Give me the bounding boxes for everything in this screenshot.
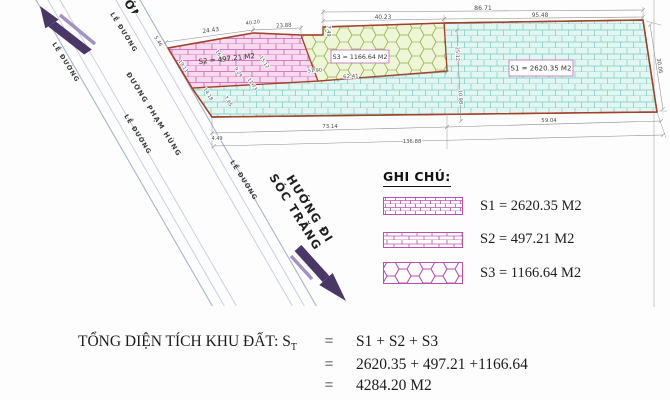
equals-sign: = [316, 377, 342, 395]
equals-sign: = [316, 356, 342, 374]
dimension-label: 59.04 [541, 118, 557, 124]
dimension-line [214, 135, 663, 146]
dimension-label: 23.88 [276, 22, 292, 29]
dimension-label: 24.43 [202, 27, 220, 35]
legend-title: GHI CHÚ: [383, 169, 451, 187]
summary-label: TỔNG DIỆN TÍCH KHU ĐẤT: ST [78, 333, 316, 353]
site-plan-page: 86.7140.2395.4824.4340.2023.885.467.4930… [0, 0, 670, 400]
direction-label-soc-trang: HƯỚNG ĐI SÓC TRĂNG [266, 163, 337, 253]
dimension-label: 25.12 [454, 47, 461, 62]
legend-item-s1: S1 = 2620.35 M2 [383, 197, 582, 215]
dimension-label: 73.14 [322, 124, 338, 130]
road-name-label: ĐƯỜNG PHẠM HÙNG [124, 70, 184, 158]
s3-pattern-swatch [383, 262, 463, 284]
legend-item-s2: S2 = 497.21 M2 [383, 231, 582, 248]
summary-line2: 2620.35 + 497.21 +1166.64 [342, 356, 528, 374]
dimension-label: 62.41 [343, 73, 359, 80]
dimension-label: 4.49 [211, 136, 222, 142]
road-edge-label: LỀ ĐƯỜNG [108, 10, 141, 54]
legend-s2-value: S2 = 497.21 M2 [480, 231, 574, 248]
dimension-label: 40.23 [375, 15, 392, 21]
plot-s3-label-box: S3 = 1166.64 M2 [331, 50, 389, 63]
equals-sign: = [316, 333, 342, 353]
plot-s1-label-box: S1 = 2620.35 M2 [509, 60, 573, 76]
dimension-label: 40.20 [245, 19, 260, 27]
road-arrow-southeast [291, 245, 346, 301]
dimension-label: 7.49 [325, 25, 331, 36]
dimension-label: 51.90 [308, 68, 323, 75]
legend: GHI CHÚ: S1 = 2620.35 M2 S2 = 497.21 M2 … [383, 166, 582, 284]
total-area-summary: TỔNG DIỆN TÍCH KHU ĐẤT: ST = S1 + S2 + S… [78, 333, 528, 395]
land-plots [168, 20, 657, 117]
legend-s3-value: S3 = 1166.64 M2 [480, 265, 581, 282]
dimension-label: 10.98 [457, 90, 464, 105]
dimension-label: 136.88 [403, 139, 422, 145]
road-edge-label: LỀ ĐƯỜNG [122, 112, 155, 156]
plot-s1-label: S1 = 2620.35 M2 [511, 65, 572, 73]
summary-line1: S1 + S2 + S3 [342, 333, 528, 353]
legend-s1-value: S1 = 2620.35 M2 [480, 198, 582, 215]
plot-s3-label: S3 = 1166.64 M2 [333, 54, 388, 61]
s1-pattern-swatch [383, 197, 463, 215]
dimension-label: 95.48 [532, 13, 549, 19]
extension-line [657, 112, 666, 138]
road-edge-label: LỀ ĐƯỜNG [228, 158, 261, 202]
s2-pattern-swatch [383, 232, 463, 248]
dimension-label: 86.71 [474, 5, 492, 12]
dimension-label: 30.06 [655, 58, 663, 75]
legend-item-s3: S3 = 1166.64 M2 [383, 262, 582, 284]
summary-line3: 4284.20 M2 [342, 377, 528, 395]
